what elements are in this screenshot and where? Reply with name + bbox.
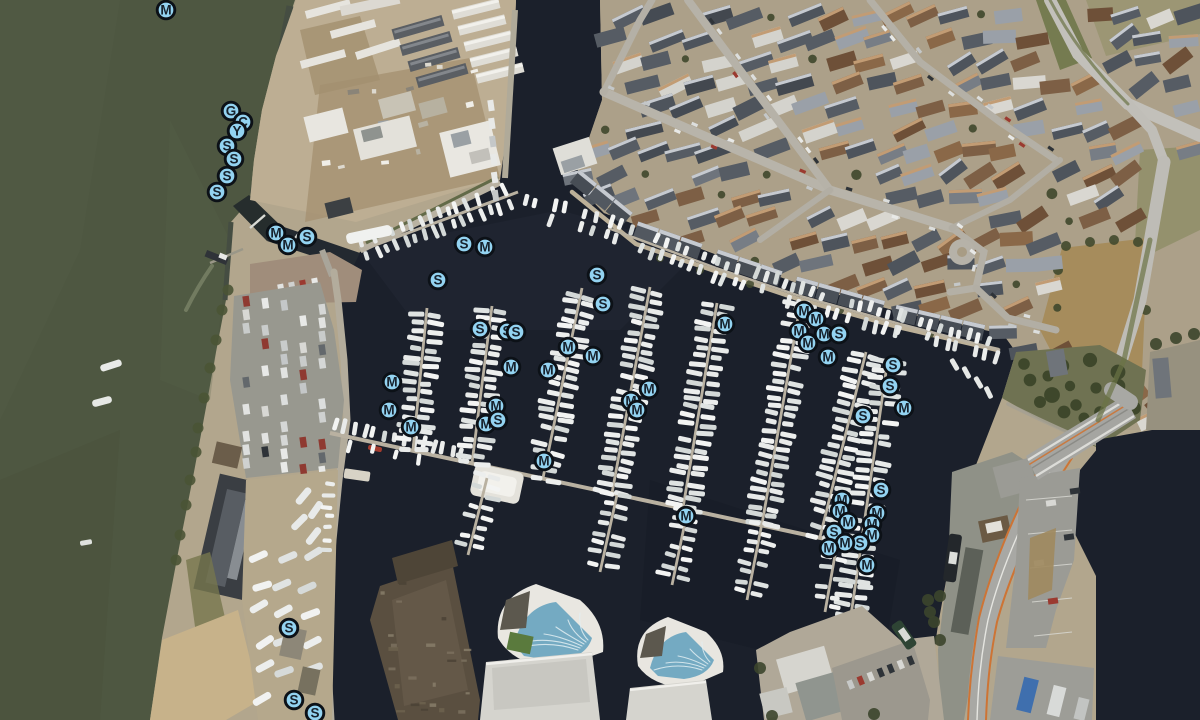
svg-text:S: S — [459, 237, 468, 252]
svg-text:S: S — [598, 297, 607, 312]
svg-text:S: S — [858, 409, 867, 424]
svg-text:S: S — [888, 358, 897, 373]
svg-text:M: M — [839, 536, 850, 551]
svg-text:M: M — [822, 350, 833, 365]
svg-text:M: M — [160, 3, 171, 18]
svg-text:M: M — [719, 317, 730, 332]
svg-text:M: M — [383, 403, 394, 418]
svg-text:M: M — [538, 454, 549, 469]
svg-text:M: M — [405, 420, 416, 435]
svg-text:S: S — [212, 185, 221, 200]
svg-text:M: M — [270, 226, 281, 241]
svg-text:M: M — [643, 382, 654, 397]
svg-text:M: M — [823, 541, 834, 556]
svg-text:M: M — [818, 327, 829, 342]
svg-text:M: M — [861, 558, 872, 573]
svg-text:M: M — [479, 240, 490, 255]
svg-text:M: M — [505, 360, 516, 375]
svg-text:M: M — [562, 340, 573, 355]
svg-text:S: S — [475, 322, 484, 337]
svg-text:S: S — [289, 693, 298, 708]
svg-text:M: M — [680, 509, 691, 524]
svg-text:M: M — [842, 515, 853, 530]
svg-text:S: S — [511, 325, 520, 340]
svg-text:M: M — [282, 238, 293, 253]
svg-text:S: S — [222, 169, 231, 184]
svg-text:M: M — [810, 312, 821, 327]
svg-text:M: M — [631, 403, 642, 418]
svg-text:S: S — [229, 152, 238, 167]
svg-text:S: S — [885, 379, 894, 394]
svg-text:S: S — [592, 268, 601, 283]
svg-text:S: S — [433, 273, 442, 288]
svg-text:M: M — [542, 363, 553, 378]
svg-text:M: M — [587, 349, 598, 364]
svg-text:S: S — [302, 230, 311, 245]
svg-text:S: S — [834, 327, 843, 342]
svg-text:S: S — [876, 483, 885, 498]
svg-text:S: S — [855, 536, 864, 551]
svg-text:S: S — [493, 413, 502, 428]
svg-text:S: S — [284, 621, 293, 636]
svg-text:M: M — [802, 336, 813, 351]
svg-text:Y: Y — [232, 124, 241, 139]
svg-text:M: M — [386, 375, 397, 390]
svg-text:M: M — [898, 401, 909, 416]
svg-text:S: S — [310, 706, 319, 720]
